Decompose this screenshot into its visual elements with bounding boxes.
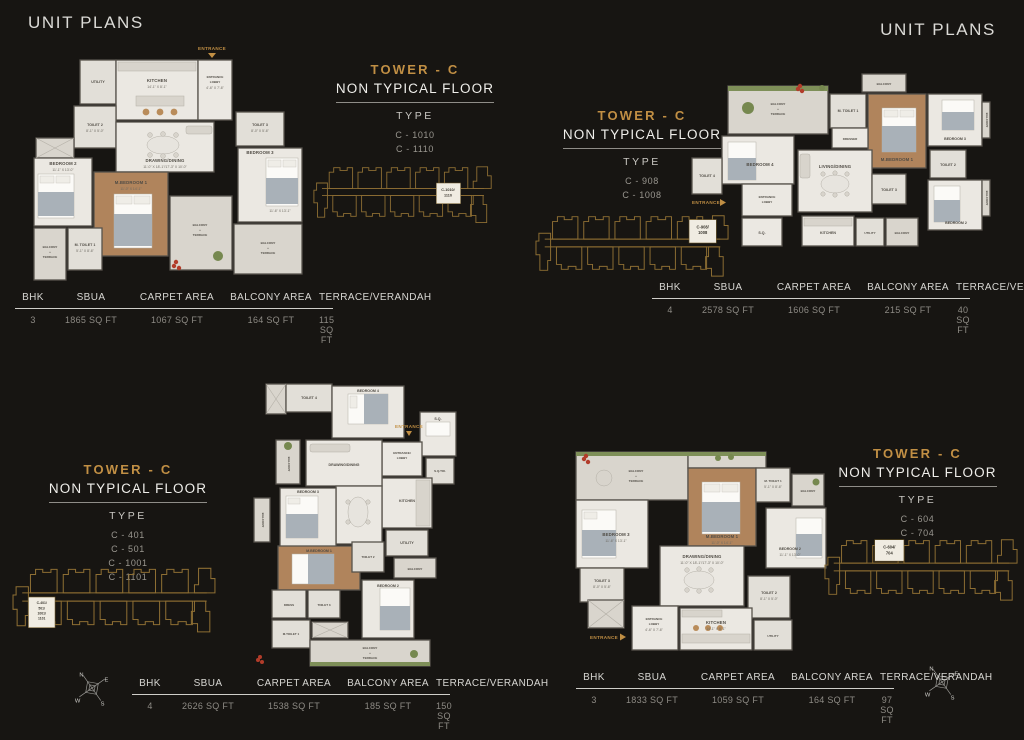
room-bedroom2: BEDROOM 2 [49,161,77,166]
table-header: BHKSBUA CARPET AREABALCONY AREA TERRACE/… [576,672,894,689]
table-row: 42626 SQ FT 1538 SQ FT185 SQ FT 150 SQ F… [132,695,450,731]
svg-text:BALCONY: BALCONY [801,489,816,493]
svg-text:BALCONY: BALCONY [771,102,786,106]
svg-text:+: + [777,107,779,111]
svg-text:C-1010/: C-1010/ [441,188,455,192]
svg-text:BALCONY: BALCONY [261,241,276,245]
compass-icon: N E S W [68,664,116,712]
svg-text:S: S [101,701,105,707]
svg-text:TERRACE: TERRACE [261,251,276,255]
svg-text:ENTRANCE: ENTRANCE [395,424,423,429]
room-drawing: DRAWING/DINING [145,158,185,163]
svg-text:4'-6" X 7'-6": 4'-6" X 7'-6" [206,86,224,90]
unit-plans-page: UNIT PLANS UNIT PLANS [0,0,1024,740]
room-utility: UTILITY [91,80,105,84]
table-header: BHKSBUA CARPET AREABALCONY AREA TERRACE/… [132,678,450,695]
room-mtoilet: M. TOILET 1 [838,109,859,113]
svg-text:BALCONY: BALCONY [363,646,378,650]
svg-text:+: + [199,228,201,232]
rooms [34,60,302,280]
type-list: C - 1010 C - 1110 [325,129,505,157]
svg-text:E: E [104,677,108,683]
svg-text:BALCONY: BALCONY [408,567,423,571]
svg-text:501/: 501/ [38,606,45,610]
room-mbedroom: M.BEDROOM 1 [706,534,739,539]
svg-text:W: W [925,692,931,698]
room-utility: UTILITY [767,634,778,638]
svg-text:4'-6" X 7'-6": 4'-6" X 7'-6" [645,628,663,632]
floor-name: NON TYPICAL FLOOR [835,465,1000,480]
svg-text:TERRACE: TERRACE [363,656,378,660]
room-mbedroom: M.BEDROOM 1 [115,180,148,185]
tower-name: TOWER - C [325,62,505,77]
room-kitchen: KITCHEN [820,231,836,235]
unit-info-1: TOWER - C NON TYPICAL FLOOR TYPE C - 101… [325,62,505,157]
room-toilet3: TOILET 3 [317,603,330,607]
tower-name: TOWER - C [38,462,218,477]
svg-text:11'-6" X 13'-1": 11'-6" X 13'-1" [605,539,627,543]
unit-info-4: TOWER - C NON TYPICAL FLOOR TYPE C - 604… [835,446,1000,541]
svg-text:BALCONY: BALCONY [895,231,910,235]
room-toilet2: TOILET 2 [761,591,777,595]
svg-text:11'-0" X 14'-1": 11'-0" X 14'-1" [711,541,733,545]
room-toilet4: TOILET 4 [301,396,317,400]
svg-text:TERRACE: TERRACE [629,479,644,483]
room-toilet3: TOILET 3 [252,123,268,127]
area-table-2: BHKSBUA CARPET AREABALCONY AREA TERRACE/… [652,282,970,335]
svg-text:S: S [951,695,955,701]
svg-text:8'-1" X 5'-0": 8'-1" X 5'-0" [760,597,778,601]
room-kitchen: KITCHEN [399,499,415,503]
svg-text:+: + [267,246,269,250]
key-plan-1: C-1010/ 1110 [312,156,494,228]
room-mtoilet: M. TOILET 1 [75,243,96,247]
entrance-marker: ENTRANCE [590,634,626,641]
table-row: 31865 SQ FT 1067 SQ FT164 SQ FT 115 SQ F… [15,309,333,345]
table-row: 31833 SQ FT 1059 SQ FT164 SQ FT 97 SQ FT [576,689,894,725]
svg-text:+: + [635,474,637,478]
type-list: C - 908 C - 1008 [552,175,732,203]
svg-text:LOBBY: LOBBY [649,622,660,626]
svg-text:C-604/: C-604/ [883,544,896,549]
svg-text:11'-1" X 13'-0": 11'-1" X 13'-0" [779,553,801,557]
room-bedroom2: BEDROOM 2 [377,584,399,588]
svg-text:LOBBY: LOBBY [762,200,773,204]
room-toilet3: TOILET 3 [881,188,897,192]
type-label: TYPE [552,156,732,168]
floor-plan-3: TOILET 4 BEDROOM 4 S.Q. ENTRANCE/ LOBBY … [248,378,463,668]
svg-text:5'-1" X 8'-6": 5'-1" X 8'-6" [76,249,94,253]
svg-text:11'-0" X 18'-1"/17'-3" X 10'-0: 11'-0" X 18'-1"/17'-3" X 10'-0" [143,165,187,169]
area-table-4: BHKSBUA CARPET AREABALCONY AREA TERRACE/… [576,672,894,725]
svg-text:1001/: 1001/ [37,611,46,615]
svg-text:TERRACE: TERRACE [193,233,208,237]
room-toilet3: TOILET 3 [594,579,610,583]
room-bedroom3: BEDROOM 3 [246,150,274,155]
room-toilet2: TOILET 2 [361,555,374,559]
svg-text:TERRACE: TERRACE [43,255,58,259]
room-bedroom4: BEDROOM 4 [357,389,379,393]
room-mbedroom: M.BEDROOM 1 [881,157,914,162]
page-title: UNIT PLANS [28,13,144,33]
svg-text:BALCONY: BALCONY [193,223,208,227]
room-utility: UTILITY [400,541,414,545]
room-bedroom3: BEDROOM 3 [602,532,630,537]
svg-text:11'-6" X 13'-1": 11'-6" X 13'-1" [269,209,291,213]
room-toilet2: TOILET 2 [87,123,103,127]
svg-text:C-401/: C-401/ [37,601,47,605]
svg-text:W: W [75,698,81,704]
room-sqtoi: S.Q.TOI. [434,469,446,473]
divider [839,486,997,487]
svg-text:BALCONY: BALCONY [261,513,265,528]
key-plan-2: C-908/ 1008 [535,204,730,282]
svg-text:1008: 1008 [698,230,708,235]
room-kitchen: KITCHEN [147,78,167,83]
svg-text:TERRACE: TERRACE [771,112,786,116]
table-header: BHKSBUA CARPET AREABALCONY AREA TERRACE/… [15,292,333,309]
room-drawing: DRAWING/DINING [329,463,360,467]
svg-text:14'-1" X 8'-1": 14'-1" X 8'-1" [706,627,726,631]
room-sq: S.Q. [758,231,765,235]
svg-text:BALCONY: BALCONY [985,191,989,206]
entrance-marker: ENTRANCE [198,46,226,58]
room-bedroom2: BEDROOM 2 [945,221,967,225]
svg-text:LOBBY: LOBBY [210,80,221,84]
unit-info-2: TOWER - C NON TYPICAL FLOOR TYPE C - 908… [552,108,732,203]
room-drawing: DRAWING/DINING [682,554,722,559]
room-mtoilet: M. TOILET 1 [764,479,782,483]
svg-text:11'-1" X 13'-0": 11'-1" X 13'-0" [52,168,74,172]
tower-name: TOWER - C [835,446,1000,461]
key-plan-4: C-604/ 704 [824,528,1019,606]
svg-text:1101: 1101 [38,617,45,621]
svg-text:8'-0" X 5'-6": 8'-0" X 5'-6" [251,129,269,133]
svg-text:704: 704 [886,550,894,555]
table-row: 42578 SQ FT 1606 SQ FT215 SQ FT 40 SQ FT [652,299,970,335]
tower-name: TOWER - C [552,108,732,123]
room-lobby: ENTRANCE [759,195,776,199]
divider [563,148,721,149]
area-table-1: BHKSBUA CARPET AREABALCONY AREA TERRACE/… [15,292,333,345]
svg-text:BALCONY: BALCONY [985,113,989,128]
svg-text:+: + [49,250,51,254]
room-bedroom3: BEDROOM 3 [944,137,966,141]
svg-text:11'-0" X 18'-1"/17'-3" X 10'-0: 11'-0" X 18'-1"/17'-3" X 10'-0" [680,561,724,565]
floor-name: NON TYPICAL FLOOR [325,81,505,96]
room-bedroom2: BEDROOM 2 [779,547,801,551]
type-label: TYPE [325,110,505,122]
room-lobby: ENTRANCE/ [393,451,411,455]
room-sq: S.Q. [434,417,441,421]
room-bedroom3: BEDROOM 3 [297,490,319,494]
floor-plan-2: BALCONY + TERRACE BALCONY M. TOILET 1 M.… [690,72,990,287]
room-dress: DRESS [284,603,294,607]
room-utility: UTILITY [864,231,875,235]
svg-text:N: N [79,672,83,678]
type-label: TYPE [38,510,218,522]
svg-text:BALCONY: BALCONY [287,457,291,472]
room-mbedroom: M.BEDROOM 1 [306,549,332,553]
svg-text:14'-1" X 8'-1": 14'-1" X 8'-1" [147,85,167,89]
divider [49,502,207,503]
room-dresser: DRESSER [843,137,858,141]
type-label: TYPE [835,494,1000,506]
svg-text:BALCONY: BALCONY [877,82,892,86]
key-plan-3: C-401/ 501/ 1001/ 1101 [12,556,217,638]
svg-text:8'-0" X 5'-6": 8'-0" X 5'-6" [593,585,611,589]
table-header: BHKSBUA CARPET AREABALCONY AREA TERRACE/… [652,282,970,299]
room-bedroom4: BEDROOM 4 [746,162,774,167]
room-lobby: ENTRANCE [207,75,224,79]
room-living: LIVING/DINING [819,164,852,169]
floor-plan-4: BALCONY + TERRACE M.BEDROOM 1 11'-0" X 1… [568,438,838,668]
svg-text:+: + [369,651,371,655]
svg-text:BALCONY: BALCONY [629,469,644,473]
room-mtoilet: M.TOILET 1 [283,632,300,636]
room-lobby: ENTRANCE [646,617,663,621]
room-toilet2: TOILET 2 [940,163,956,167]
svg-text:8'-1" X 5'-0": 8'-1" X 5'-0" [86,129,104,133]
divider [336,102,494,103]
svg-text:ENTRANCE: ENTRANCE [198,46,226,51]
area-table-3: BHKSBUA CARPET AREABALCONY AREA TERRACE/… [132,678,450,731]
svg-text:11'-0" X 14'-1": 11'-0" X 14'-1" [120,187,142,191]
svg-text:1110: 1110 [444,194,452,198]
svg-text:5'-1" X 8'-6": 5'-1" X 8'-6" [764,485,782,489]
page-title-right: UNIT PLANS [880,20,996,40]
svg-text:LOBBY: LOBBY [397,456,408,460]
floor-name: NON TYPICAL FLOOR [38,481,218,496]
floor-name: NON TYPICAL FLOOR [552,127,732,142]
floor-plan-1: UTILITY KITCHEN 14'-1" X 8'-1" ENTRANCE … [28,42,313,292]
svg-text:C-908/: C-908/ [697,224,710,229]
room-kitchen: KITCHEN [706,620,726,625]
svg-text:BALCONY: BALCONY [43,245,58,249]
svg-text:ENTRANCE: ENTRANCE [590,635,618,640]
